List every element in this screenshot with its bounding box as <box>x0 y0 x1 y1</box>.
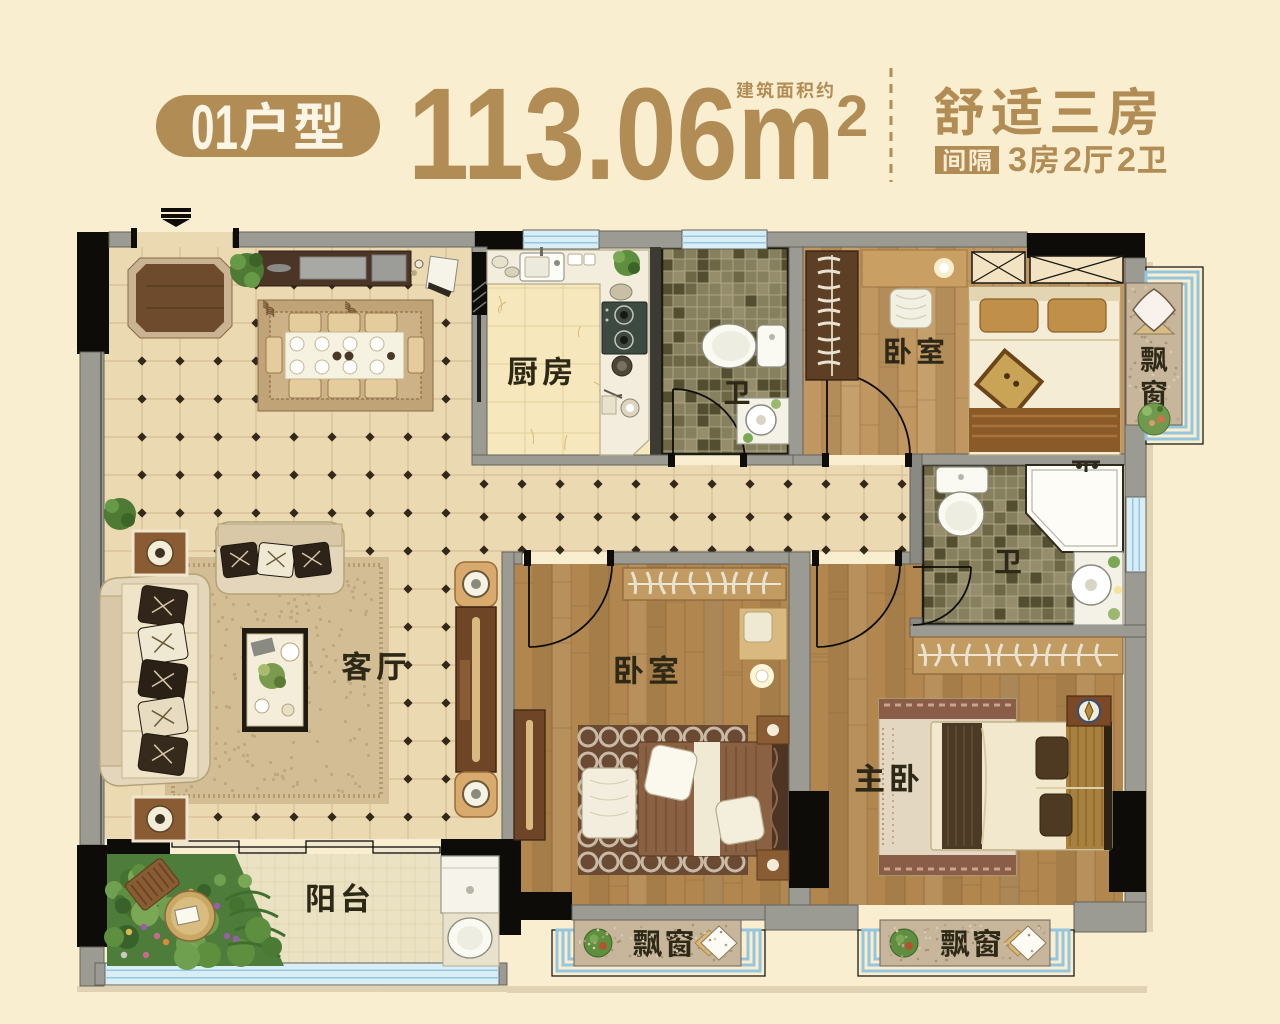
svg-text:01: 01 <box>191 93 238 163</box>
svg-text:2: 2 <box>1117 141 1136 179</box>
svg-text:2: 2 <box>1063 141 1082 179</box>
svg-text:113.06m: 113.06m <box>408 60 835 207</box>
svg-text:3: 3 <box>1008 141 1027 179</box>
svg-text:2: 2 <box>836 84 868 149</box>
